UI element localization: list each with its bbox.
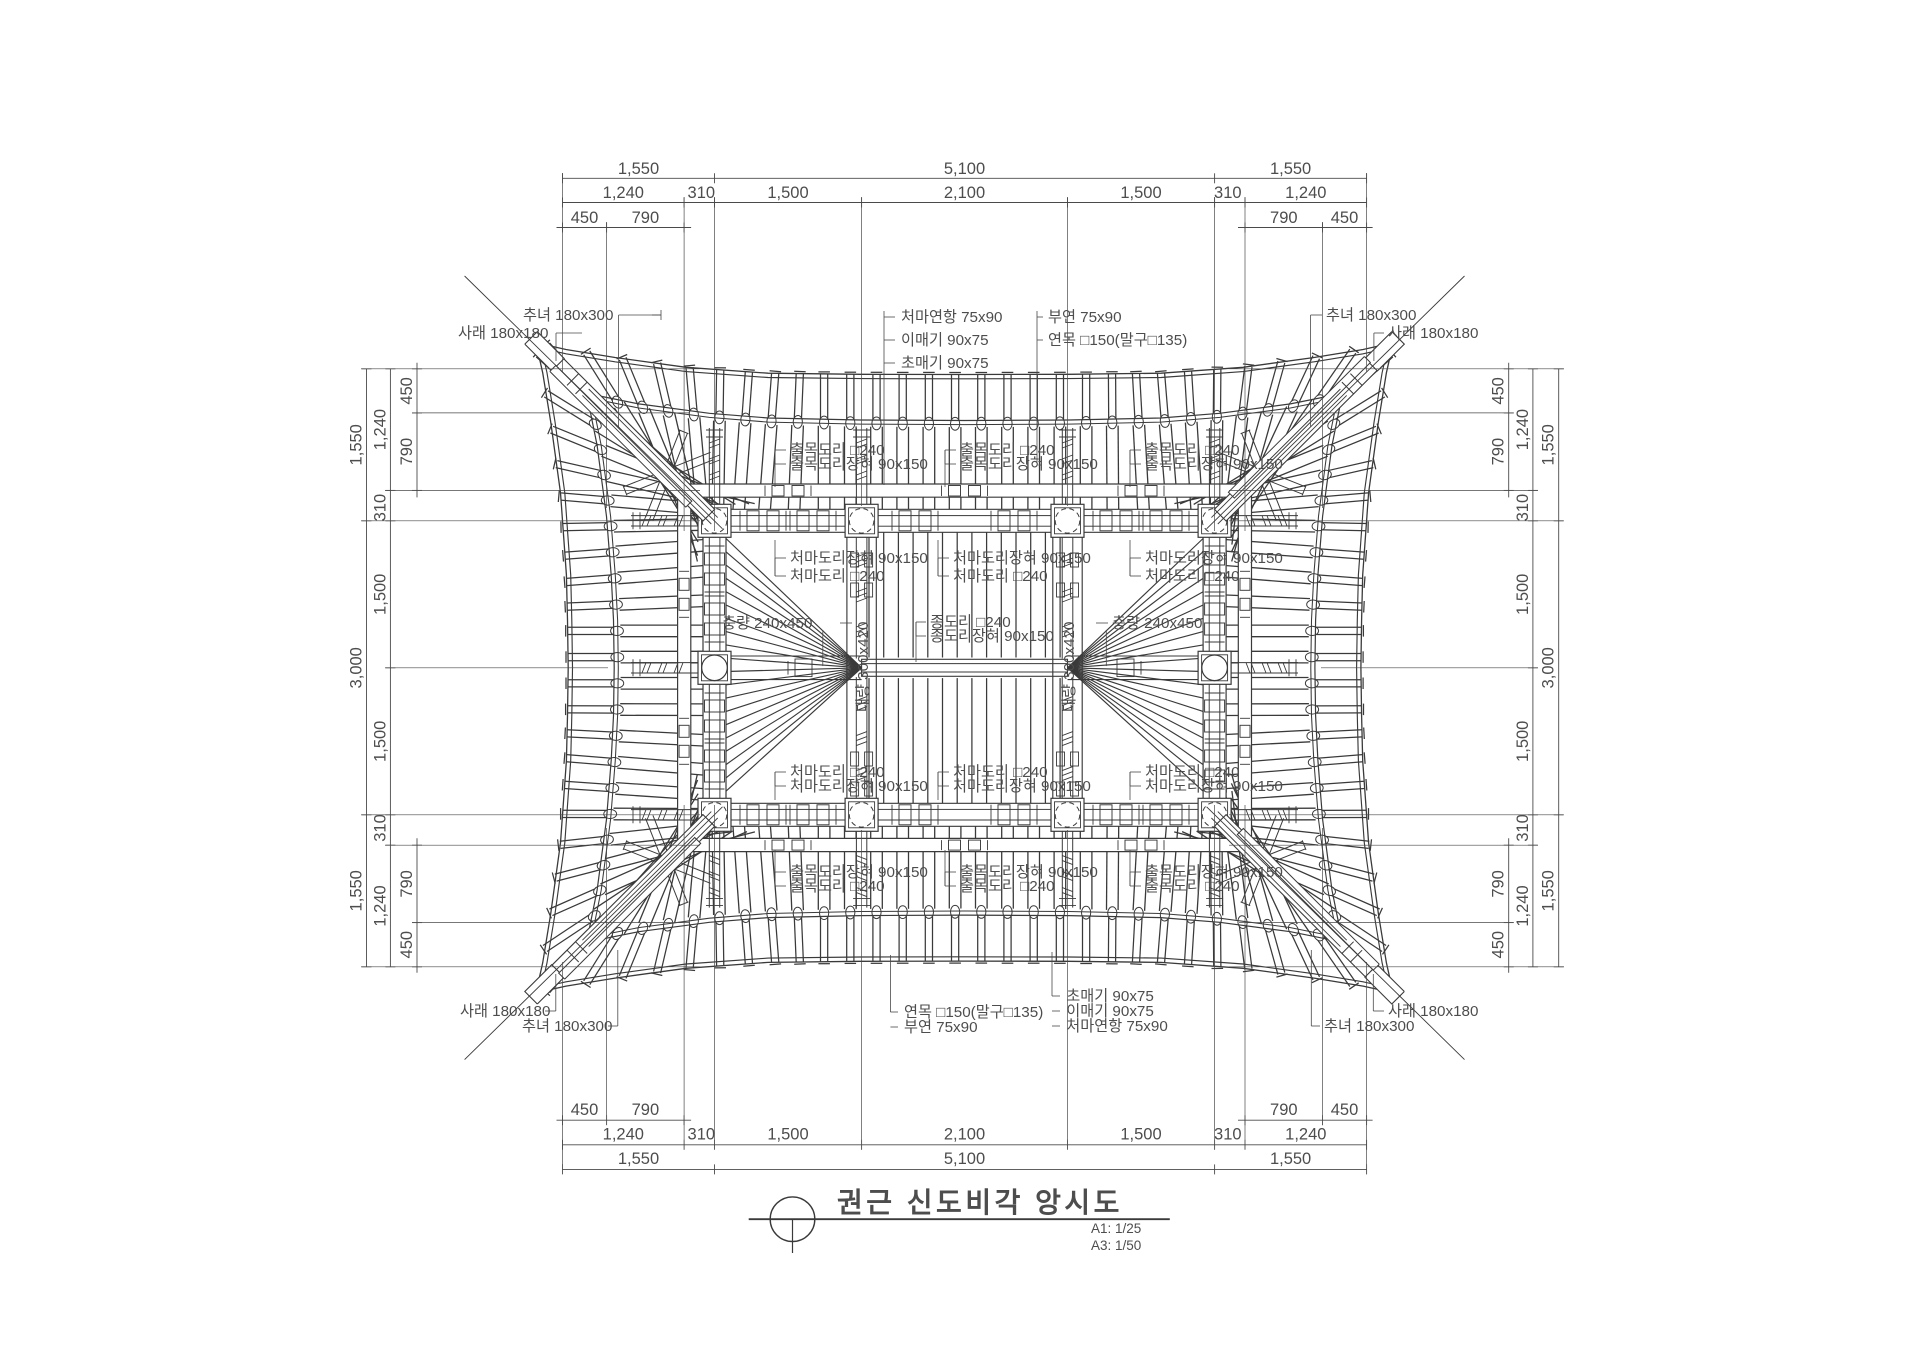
svg-text:3,000: 3,000 xyxy=(1540,647,1558,688)
svg-text:추녀 180x300: 추녀 180x300 xyxy=(1324,1018,1414,1035)
svg-text:초매기 90x75: 초매기 90x75 xyxy=(901,355,989,372)
svg-text:450: 450 xyxy=(1331,209,1359,227)
svg-text:처마도리장혀 90x150: 처마도리장혀 90x150 xyxy=(953,778,1091,795)
svg-text:1,240: 1,240 xyxy=(1514,409,1532,450)
svg-text:1,500: 1,500 xyxy=(371,574,389,615)
svg-text:1,500: 1,500 xyxy=(1120,1125,1161,1143)
svg-text:450: 450 xyxy=(398,377,416,405)
svg-text:1,240: 1,240 xyxy=(603,1125,644,1143)
svg-text:사래 180x180: 사래 180x180 xyxy=(458,325,548,342)
svg-text:1,240: 1,240 xyxy=(371,885,389,926)
svg-text:A1: 1/25: A1: 1/25 xyxy=(1091,1221,1141,1236)
svg-text:추녀 180x300: 추녀 180x300 xyxy=(1326,307,1416,324)
svg-text:1,550: 1,550 xyxy=(618,160,659,178)
svg-text:출목도리 □240: 출목도리 □240 xyxy=(790,878,885,895)
svg-text:부연 75x90: 부연 75x90 xyxy=(904,1019,978,1036)
svg-text:310: 310 xyxy=(371,814,389,842)
svg-text:처마도리 □240: 처마도리 □240 xyxy=(1145,568,1240,585)
svg-text:1,550: 1,550 xyxy=(1540,870,1558,911)
svg-text:A3: 1/50: A3: 1/50 xyxy=(1091,1238,1141,1253)
svg-text:790: 790 xyxy=(1490,438,1508,466)
svg-text:310: 310 xyxy=(1514,814,1532,842)
svg-text:추녀 180x300: 추녀 180x300 xyxy=(523,307,613,324)
svg-text:450: 450 xyxy=(571,1101,599,1119)
svg-text:부연 75x90: 부연 75x90 xyxy=(1048,309,1122,326)
svg-text:충량 240x450: 충량 240x450 xyxy=(722,615,812,632)
svg-text:출목도리장혀 90x150: 출목도리장혀 90x150 xyxy=(960,456,1098,473)
svg-text:310: 310 xyxy=(1214,1125,1242,1143)
svg-text:5,100: 5,100 xyxy=(944,1150,985,1168)
svg-text:1,500: 1,500 xyxy=(767,184,808,202)
svg-text:2,100: 2,100 xyxy=(944,1125,985,1143)
svg-text:추녀 180x300: 추녀 180x300 xyxy=(522,1018,612,1035)
svg-text:1,550: 1,550 xyxy=(1540,424,1558,465)
svg-text:처마연항 75x90: 처마연항 75x90 xyxy=(901,309,1003,326)
svg-text:1,240: 1,240 xyxy=(371,409,389,450)
svg-text:450: 450 xyxy=(1331,1101,1359,1119)
svg-text:종도리장혀 90x150: 종도리장혀 90x150 xyxy=(930,628,1054,645)
svg-text:1,500: 1,500 xyxy=(767,1125,808,1143)
svg-text:1,500: 1,500 xyxy=(1514,574,1532,615)
svg-text:1,550: 1,550 xyxy=(348,424,366,465)
svg-text:310: 310 xyxy=(1514,494,1532,522)
svg-text:대량 300x420: 대량 300x420 xyxy=(1061,622,1078,712)
svg-text:310: 310 xyxy=(688,1125,716,1143)
svg-text:1,240: 1,240 xyxy=(603,184,644,202)
svg-text:1,240: 1,240 xyxy=(1285,1125,1326,1143)
svg-text:790: 790 xyxy=(632,209,660,227)
svg-text:310: 310 xyxy=(688,184,716,202)
svg-text:처마도리장혀 90x150: 처마도리장혀 90x150 xyxy=(790,550,928,567)
svg-text:1,550: 1,550 xyxy=(1270,1150,1311,1168)
svg-text:처마도리장혀 90x150: 처마도리장혀 90x150 xyxy=(1145,550,1283,567)
svg-text:310: 310 xyxy=(1214,184,1242,202)
svg-text:790: 790 xyxy=(632,1101,660,1119)
svg-text:충량 240x450: 충량 240x450 xyxy=(1112,615,1202,632)
svg-text:권근 신도비각 앙시도: 권근 신도비각 앙시도 xyxy=(837,1187,1123,1218)
svg-text:1,550: 1,550 xyxy=(348,870,366,911)
svg-text:1,240: 1,240 xyxy=(1514,885,1532,926)
svg-text:310: 310 xyxy=(371,494,389,522)
svg-text:처마도리장혀 90x150: 처마도리장혀 90x150 xyxy=(1145,778,1283,795)
svg-text:출목도리장혀 90x150: 출목도리장혀 90x150 xyxy=(1145,456,1283,473)
svg-text:연목 □150(말구□135): 연목 □150(말구□135) xyxy=(1048,332,1187,349)
svg-text:출목도리 □240: 출목도리 □240 xyxy=(960,878,1055,895)
svg-text:1,500: 1,500 xyxy=(1120,184,1161,202)
svg-text:450: 450 xyxy=(1490,931,1508,959)
svg-text:처마연항 75x90: 처마연항 75x90 xyxy=(1066,1018,1168,1035)
svg-text:450: 450 xyxy=(1490,377,1508,405)
svg-text:사래 180x180: 사래 180x180 xyxy=(1388,325,1478,342)
svg-text:대량 300x420: 대량 300x420 xyxy=(855,622,872,712)
svg-text:790: 790 xyxy=(1270,209,1298,227)
svg-text:처마도리 □240: 처마도리 □240 xyxy=(953,568,1048,585)
svg-text:1,240: 1,240 xyxy=(1285,184,1326,202)
svg-text:790: 790 xyxy=(1270,1101,1298,1119)
svg-text:이매기 90x75: 이매기 90x75 xyxy=(901,332,989,349)
svg-text:1,550: 1,550 xyxy=(1270,160,1311,178)
svg-text:5,100: 5,100 xyxy=(944,160,985,178)
svg-text:1,500: 1,500 xyxy=(1514,721,1532,762)
svg-text:1,550: 1,550 xyxy=(618,1150,659,1168)
svg-text:처마도리장혀 90x150: 처마도리장혀 90x150 xyxy=(953,550,1091,567)
svg-text:450: 450 xyxy=(571,209,599,227)
svg-text:2,100: 2,100 xyxy=(944,184,985,202)
svg-text:3,000: 3,000 xyxy=(348,647,366,688)
svg-text:출목도리장혀 90x150: 출목도리장혀 90x150 xyxy=(790,456,928,473)
svg-text:처마도리장혀 90x150: 처마도리장혀 90x150 xyxy=(790,778,928,795)
svg-text:790: 790 xyxy=(398,438,416,466)
svg-text:790: 790 xyxy=(398,870,416,898)
svg-text:출목도리 □240: 출목도리 □240 xyxy=(1145,878,1240,895)
svg-text:처마도리 □240: 처마도리 □240 xyxy=(790,568,885,585)
svg-text:1,500: 1,500 xyxy=(371,721,389,762)
svg-text:790: 790 xyxy=(1490,870,1508,898)
svg-text:450: 450 xyxy=(398,931,416,959)
